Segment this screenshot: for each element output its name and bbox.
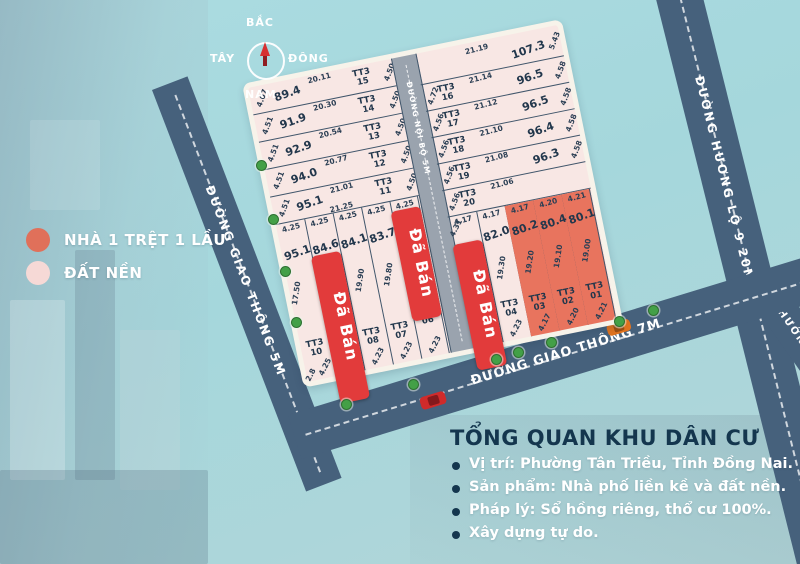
car-roof <box>427 394 440 406</box>
plot-right-width-label: 4.58 <box>570 139 584 159</box>
bullet-icon <box>452 462 460 470</box>
plot-id-label: TT3 03 <box>523 292 555 315</box>
plot-id-label: TT3 19 <box>448 161 479 184</box>
flyer-canvas: nhatot nhatot ĐƯỜNG GIAO THÔNG 5M ĐƯỜNG … <box>0 0 800 564</box>
compass-west-label: TÂY <box>210 52 235 65</box>
plot-id-label: TT3 20 <box>453 188 484 211</box>
plot-bottom-width-label: 4.23 <box>399 341 414 361</box>
tree-icon <box>614 316 625 327</box>
plot-id-label: TT3 02 <box>551 286 583 309</box>
plot-id-label: TT3 18 <box>442 135 473 158</box>
plot-depth-label: 19.00 <box>581 238 592 263</box>
overview-bullet: Vị trí: Phường Tân Triều, Tỉnh Đồng Nai. <box>450 456 798 473</box>
plot-right-width-label: 5.43 <box>548 31 562 51</box>
bullet-text: Pháp lý: Sổ hồng riêng, thổ cư 100%. <box>469 502 772 519</box>
tree-icon <box>546 337 557 348</box>
plot-bottom-width-label: 4.23 <box>370 346 385 366</box>
legend: NHÀ 1 TRỆT 1 LẦU ĐẤT NỀN <box>26 228 226 294</box>
plot-area-label: 80.2 <box>510 218 539 237</box>
overview-bullet: Sản phẩm: Nhà phố liền kề và đất nền. <box>450 479 798 496</box>
tree-icon <box>291 317 302 328</box>
legend-item-land: ĐẤT NỀN <box>26 261 226 285</box>
overview-bullet: Xây dựng tự do. <box>450 525 798 542</box>
tree-icon <box>408 379 419 390</box>
plot-right-width-label: 4.58 <box>559 87 573 107</box>
plot-depth-label: 19.20 <box>524 250 535 275</box>
plot-area-label: 80.1 <box>567 207 596 226</box>
plot-area-label: 91.9 <box>278 111 307 130</box>
plot-area-label: 80.4 <box>538 213 567 232</box>
plot-id-label: TT3 14 <box>352 94 383 117</box>
plot-depth-label: 19.90 <box>354 268 365 293</box>
plot-bottom-width-label: 4.23 <box>509 318 524 338</box>
plot-area-label: 83.7 <box>368 226 397 245</box>
plot-area-label: 94.0 <box>290 166 319 185</box>
tree-icon <box>513 347 524 358</box>
plot-id-label: TT3 07 <box>385 320 417 343</box>
plot-area-label: 82.0 <box>482 224 511 243</box>
plot-length-label: 21.19 <box>464 43 489 57</box>
plot-area-label: 96.5 <box>515 67 544 86</box>
bullet-text: Vị trí: Phường Tân Triều, Tỉnh Đồng Nai. <box>469 456 793 473</box>
bullet-text: Sản phẩm: Nhà phố liền kề và đất nền. <box>469 479 786 496</box>
tree-icon <box>341 399 352 410</box>
legend-item-house: NHÀ 1 TRỆT 1 LẦU <box>26 228 226 252</box>
legend-swatch-land <box>26 261 50 285</box>
plot-bottom-width-label: 4.25 <box>318 357 333 377</box>
plot-id-label: TT3 12 <box>363 149 394 172</box>
road-right-label: ĐƯỜNG HƯƠNG LỘ 9 20M <box>692 74 757 284</box>
tree-icon <box>491 354 502 365</box>
plot-bottom-width-label: 4.23 <box>427 335 442 355</box>
plot-left-width-label: 4.51 <box>272 170 286 190</box>
plot-left-width-label: 4.51 <box>278 198 292 218</box>
plot-left-width-label: 4.51 <box>261 116 275 136</box>
plot-depth-label: 19.80 <box>383 262 394 287</box>
plot-id-label: TT3 11 <box>369 176 400 199</box>
plot-area-label: 107.3 <box>510 39 546 61</box>
plot-area-label: 96.5 <box>521 94 550 113</box>
legend-label: ĐẤT NỀN <box>64 264 143 282</box>
plot-right-width-label: 4.58 <box>565 113 579 133</box>
plot-area-label: 96.3 <box>531 147 560 166</box>
compass: BẮC TÂY ĐÔNG NAM <box>208 16 323 108</box>
legend-label: NHÀ 1 TRỆT 1 LẦU <box>64 231 226 249</box>
tree-icon <box>280 266 291 277</box>
plot-depth-label: 19.30 <box>496 256 507 281</box>
plot-left-width-label: 4.51 <box>267 143 281 163</box>
bullet-icon <box>452 508 460 516</box>
plot-corner-length-label: 2.8 <box>305 367 318 382</box>
legend-swatch-house <box>26 228 50 252</box>
compass-east-label: ĐÔNG <box>288 52 329 65</box>
plot-bottom-width-label: 4.17 <box>537 312 552 332</box>
bullet-icon <box>452 531 460 539</box>
plot-right-width-label: 4.58 <box>554 60 568 80</box>
plot-id-label: TT3 13 <box>358 121 389 144</box>
plot-id-label: TT3 01 <box>580 280 612 303</box>
plot-depth-label: 19.10 <box>553 244 564 269</box>
bullet-text: Xây dựng tự do. <box>469 525 599 542</box>
tree-icon <box>648 305 659 316</box>
compass-needle-icon <box>260 42 270 56</box>
overview-bullet: Pháp lý: Sổ hồng riêng, thổ cư 100%. <box>450 502 798 519</box>
plot-bottom-width-label: 4.20 <box>565 307 580 327</box>
plot-area-label: 84.1 <box>339 232 368 251</box>
plot-side-length-label: 17.50 <box>291 281 302 306</box>
plot-bottom-width-label: 4.21 <box>594 301 609 321</box>
tree-icon <box>256 160 267 171</box>
plot-area-label: 92.9 <box>284 139 313 158</box>
overview-panel: TỔNG QUAN KHU DÂN CƯ Vị trí: Phường Tân … <box>450 426 798 542</box>
compass-south-label: NAM <box>245 88 277 101</box>
plot-area-label: 95.1 <box>283 243 312 262</box>
tree-icon <box>268 214 279 225</box>
plot-area-label: 95.1 <box>295 194 324 213</box>
plot-id-label: TT3 08 <box>356 325 388 348</box>
bullet-icon <box>452 485 460 493</box>
plot-id-label: TT3 17 <box>437 108 468 131</box>
car-red <box>419 390 448 410</box>
plot-id-label: TT3 04 <box>495 297 527 320</box>
plot-id-label: TT3 16 <box>431 82 462 105</box>
compass-needle-tail <box>263 56 267 66</box>
plot-id-label: TT3 15 <box>347 66 378 89</box>
compass-north-label: BẮC <box>246 16 274 29</box>
overview-title: TỔNG QUAN KHU DÂN CƯ <box>450 426 798 450</box>
plot-area-label: 96.4 <box>526 120 555 139</box>
